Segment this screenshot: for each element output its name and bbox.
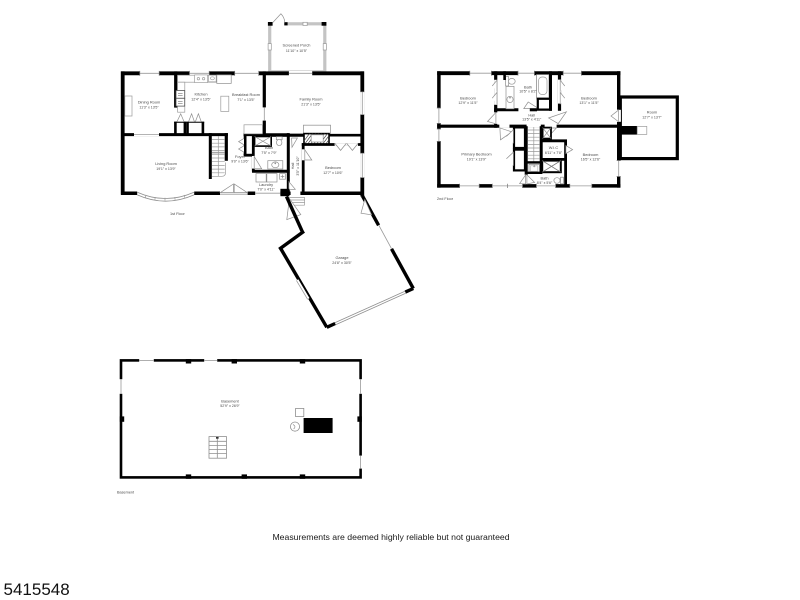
svg-text:Bedroom: Bedroom: [581, 95, 597, 100]
svg-text:Kitchen: Kitchen: [195, 92, 208, 97]
svg-text:Living Room: Living Room: [155, 161, 177, 166]
svg-text:Breakfast Room: Breakfast Room: [232, 92, 260, 97]
svg-text:11'10" x 10'5": 11'10" x 10'5": [286, 49, 308, 53]
svg-text:6'11" x 7'8": 6'11" x 7'8": [545, 151, 563, 155]
svg-text:Primary Bedroom: Primary Bedroom: [461, 152, 491, 157]
svg-text:12'4" x 13'5": 12'4" x 13'5": [191, 97, 211, 101]
svg-text:10'5" x 8'2": 10'5" x 8'2": [519, 90, 537, 94]
svg-text:Dining Room: Dining Room: [138, 100, 161, 105]
svg-text:9'0" x 13'6": 9'0" x 13'6": [231, 160, 249, 164]
svg-text:Hall: Hall: [290, 163, 295, 170]
svg-text:21'3" x 13'5": 21'3" x 13'5": [301, 102, 321, 106]
svg-text:8'4" x 5'6": 8'4" x 5'6": [537, 181, 553, 185]
svg-text:13'1" x 11'5": 13'1" x 11'5": [579, 101, 599, 105]
svg-text:Basement: Basement: [117, 490, 135, 494]
svg-text:Room: Room: [647, 110, 657, 115]
svg-text:16'5" x 12'6": 16'5" x 12'6": [581, 158, 601, 162]
svg-text:Bath: Bath: [540, 175, 548, 180]
svg-text:Bath: Bath: [265, 145, 273, 150]
svg-text:Bedroom: Bedroom: [325, 165, 341, 170]
svg-text:5415548: 5415548: [4, 580, 70, 599]
svg-text:7'1" x 13'5": 7'1" x 13'5": [237, 98, 255, 102]
svg-text:3'5" x 11'10": 3'5" x 11'10": [296, 156, 300, 176]
svg-text:7'0" x 4'11": 7'0" x 4'11": [257, 188, 275, 192]
svg-text:52'9" x 26'9": 52'9" x 26'9": [220, 404, 240, 408]
svg-text:Bedroom: Bedroom: [460, 95, 476, 100]
svg-text:12'7" x 13'7": 12'7" x 13'7": [642, 115, 662, 119]
svg-text:12'7" x 10'6": 12'7" x 10'6": [323, 171, 343, 175]
svg-text:Bedroom: Bedroom: [583, 152, 599, 157]
svg-text:Foyer: Foyer: [235, 154, 246, 159]
svg-text:19'1" x 13'9": 19'1" x 13'9": [467, 157, 487, 161]
svg-text:Laundry: Laundry: [259, 182, 273, 187]
svg-text:Screened Porch: Screened Porch: [283, 43, 311, 48]
svg-text:24'8" x 30'5": 24'8" x 30'5": [332, 261, 352, 265]
svg-text:Family Room: Family Room: [300, 97, 323, 102]
svg-text:1st Floor: 1st Floor: [170, 212, 186, 216]
svg-text:Measurements are deemed highly: Measurements are deemed highly reliable …: [272, 532, 509, 542]
svg-text:7'5" x 7'9": 7'5" x 7'9": [261, 151, 277, 155]
svg-text:W.I.C: W.I.C: [549, 145, 559, 150]
svg-text:Garage: Garage: [336, 255, 349, 260]
svg-text:11'3" x 13'5": 11'3" x 13'5": [139, 105, 159, 109]
svg-text:Basement: Basement: [221, 399, 239, 404]
svg-text:2nd Floor: 2nd Floor: [437, 197, 454, 201]
svg-text:19'1" x 13'9": 19'1" x 13'9": [156, 167, 176, 171]
svg-text:12'9" x 11'5": 12'9" x 11'5": [458, 101, 478, 105]
svg-text:13'5" x 4'11": 13'5" x 4'11": [522, 118, 542, 122]
